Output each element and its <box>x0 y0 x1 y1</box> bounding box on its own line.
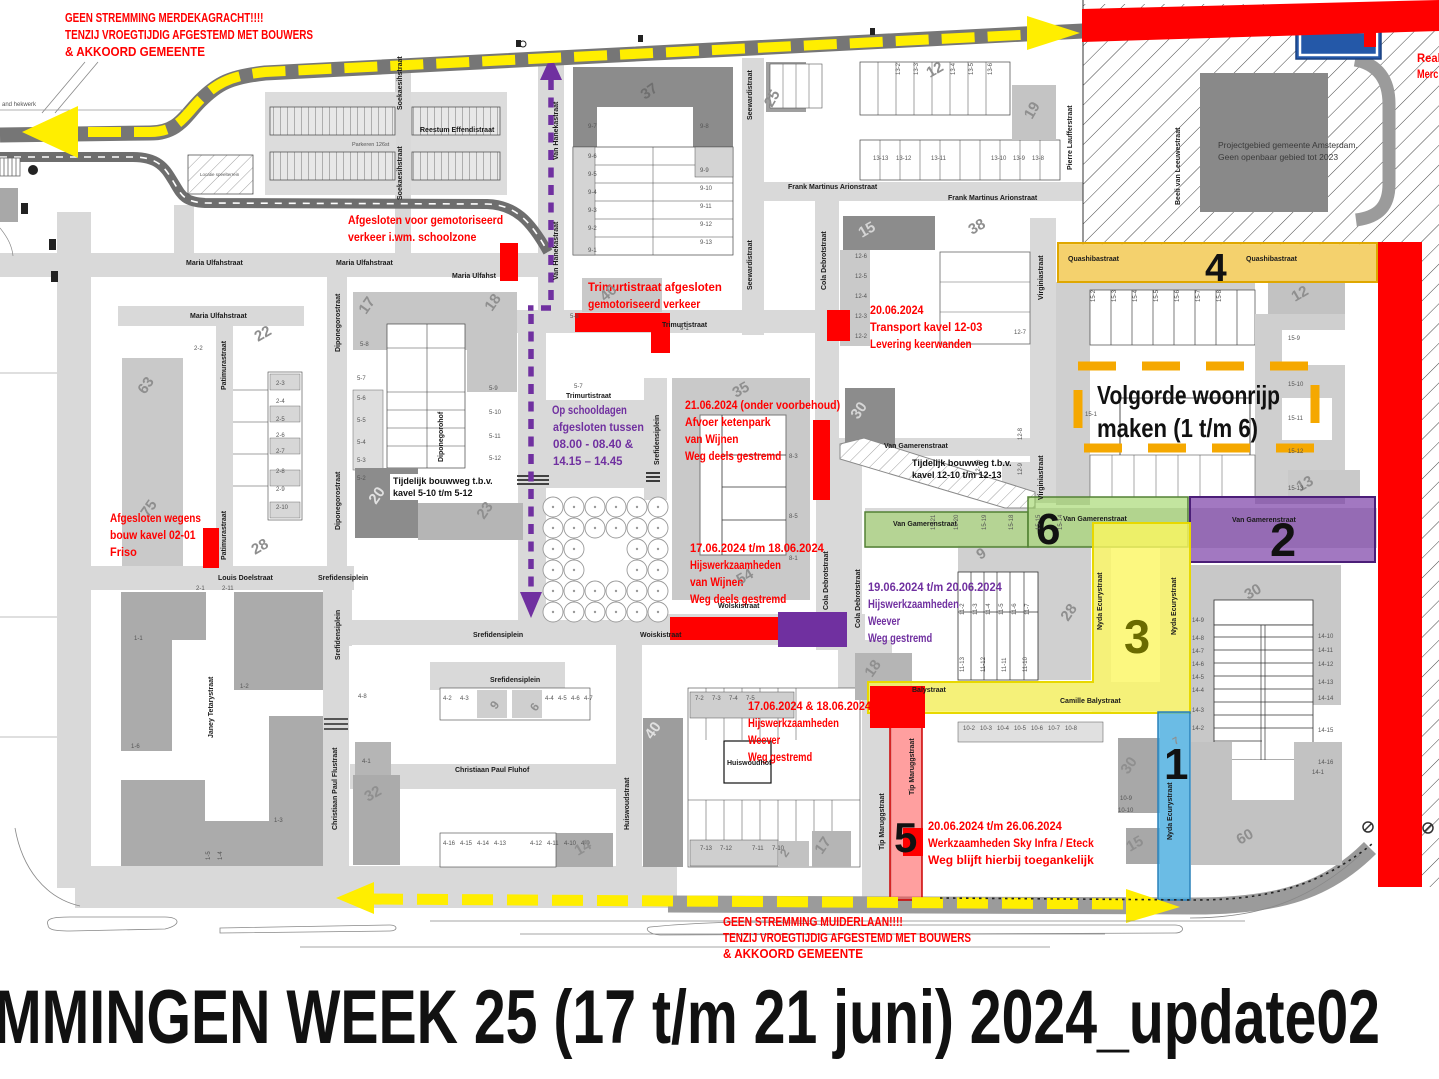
svg-text:9-1: 9-1 <box>680 326 689 332</box>
svg-text:15-14: 15-14 <box>1058 514 1064 530</box>
svg-text:Diponegorostraat: Diponegorostraat <box>335 471 342 530</box>
svg-text:Van Hanekastraat: Van Hanekastraat <box>553 101 560 160</box>
svg-text:12-8: 12-8 <box>1018 427 1024 440</box>
svg-text:11-2: 11-2 <box>960 603 966 615</box>
svg-text:15-20: 15-20 <box>954 514 960 530</box>
svg-text:7-5: 7-5 <box>746 696 755 702</box>
svg-text:Frank Martinus Arionstraat: Frank Martinus Arionstraat <box>948 195 1038 202</box>
svg-text:15-1: 15-1 <box>1085 412 1098 418</box>
svg-text:7-13: 7-13 <box>700 846 713 852</box>
svg-text:14-14: 14-14 <box>1318 696 1334 702</box>
svg-text:2-1: 2-1 <box>196 586 205 592</box>
svg-text:Afgesloten voor gemotoriseerd: Afgesloten voor gemotoriseerd <box>348 214 503 227</box>
svg-text:kavel 5-10 t/m 5-12: kavel 5-10 t/m 5-12 <box>393 488 473 498</box>
svg-text:1-3: 1-3 <box>274 818 283 824</box>
svg-text:Srefidensiplein: Srefidensiplein <box>318 575 368 582</box>
svg-text:5-8: 5-8 <box>570 314 579 320</box>
svg-text:21.06.2024 (onder voorbehoud): 21.06.2024 (onder voorbehoud) <box>685 399 840 412</box>
svg-text:15-15: 15-15 <box>1036 514 1042 530</box>
svg-text:4: 4 <box>1205 247 1227 290</box>
svg-text:10-8: 10-8 <box>1065 726 1078 732</box>
svg-text:Van Hanekastraat: Van Hanekastraat <box>553 221 560 280</box>
svg-text:2-5: 2-5 <box>276 417 285 423</box>
svg-text:Hijswerkzaamheden: Hijswerkzaamheden <box>690 559 781 572</box>
svg-text:Patimurastraat: Patimurastraat <box>221 340 228 390</box>
svg-text:Tip Maruggstraat: Tip Maruggstraat <box>909 738 916 795</box>
svg-text:2-4: 2-4 <box>276 399 285 405</box>
svg-text:10-5: 10-5 <box>1014 726 1027 732</box>
svg-text:2-6: 2-6 <box>276 433 285 439</box>
svg-text:5-7: 5-7 <box>574 384 583 390</box>
svg-text:Weg deels gestremd: Weg deels gestremd <box>685 450 781 463</box>
svg-text:Wolskistraat: Wolskistraat <box>718 603 760 610</box>
svg-text:Christiaan Paul Flustraat: Christiaan Paul Flustraat <box>332 747 339 830</box>
svg-text:15-10: 15-10 <box>1288 382 1304 388</box>
svg-text:4-16: 4-16 <box>443 841 456 847</box>
svg-text:GEEN STREMMING MUIDERLAAN!!!!: GEEN STREMMING MUIDERLAAN!!!! <box>723 914 903 929</box>
svg-text:9-5: 9-5 <box>588 172 597 178</box>
svg-text:Maria Ulfahstraat: Maria Ulfahstraat <box>336 260 393 267</box>
svg-text:Weg gestremd: Weg gestremd <box>868 632 932 645</box>
svg-text:Louis Doelstraat: Louis Doelstraat <box>218 575 274 582</box>
svg-text:4-2: 4-2 <box>443 696 452 702</box>
svg-text:7-2: 7-2 <box>695 696 704 702</box>
svg-text:15-12: 15-12 <box>1288 449 1304 455</box>
svg-text:5-12: 5-12 <box>489 456 502 462</box>
svg-text:13-13: 13-13 <box>873 156 889 162</box>
svg-text:4-14: 4-14 <box>477 841 490 847</box>
svg-text:14-5: 14-5 <box>1192 675 1205 681</box>
svg-text:5-9: 5-9 <box>489 386 498 392</box>
svg-text:Locatie speelterrein: Locatie speelterrein <box>200 172 240 177</box>
svg-text:Soekaesihstraat: Soekaesihstraat <box>397 146 404 200</box>
svg-text:15-4: 15-4 <box>1133 289 1139 302</box>
svg-text:Camille Balystraat: Camille Balystraat <box>1060 698 1121 705</box>
svg-text:1-6: 1-6 <box>131 744 140 750</box>
svg-text:4-8: 4-8 <box>358 694 367 700</box>
svg-text:10-4: 10-4 <box>997 726 1010 732</box>
svg-text:11-7: 11-7 <box>1025 603 1031 615</box>
svg-text:5: 5 <box>894 814 917 861</box>
svg-text:Srefidensiplein: Srefidensiplein <box>654 415 661 465</box>
svg-text:11-13: 11-13 <box>960 656 966 672</box>
svg-text:20.06.2024: 20.06.2024 <box>870 304 924 317</box>
svg-text:7-12: 7-12 <box>720 846 733 852</box>
svg-text:Nyda Ecurystraat: Nyda Ecurystraat <box>1167 782 1174 840</box>
svg-text:Woiskistraat: Woiskistraat <box>640 632 682 639</box>
svg-text:19.06.2024 t/m 20.06.2024: 19.06.2024 t/m 20.06.2024 <box>868 581 1002 594</box>
svg-text:13-12: 13-12 <box>896 156 912 162</box>
svg-text:Parkeren 126st: Parkeren 126st <box>352 142 390 148</box>
svg-text:Soekaesihstraat: Soekaesihstraat <box>397 56 404 110</box>
svg-text:Transport kavel 12-03: Transport kavel 12-03 <box>870 321 983 334</box>
svg-text:14-7: 14-7 <box>1192 649 1205 655</box>
svg-text:maken (1 t/m 6): maken (1 t/m 6) <box>1097 413 1258 443</box>
svg-text:9-8: 9-8 <box>700 124 709 130</box>
svg-text:4-5: 4-5 <box>558 696 567 702</box>
svg-text:9-10: 9-10 <box>700 186 713 192</box>
svg-text:15-21: 15-21 <box>931 514 937 530</box>
svg-text:Huiswoudhof: Huiswoudhof <box>727 760 772 767</box>
svg-text:van Wijnen: van Wijnen <box>685 433 739 446</box>
svg-text:10-10: 10-10 <box>1118 808 1134 814</box>
svg-text:Diponegorostraat: Diponegorostraat <box>335 293 342 352</box>
svg-text:15-6: 15-6 <box>1175 289 1181 302</box>
svg-text:12-10: 12-10 <box>976 459 982 475</box>
svg-text:14-15: 14-15 <box>1318 728 1334 734</box>
svg-text:9-11: 9-11 <box>700 204 712 210</box>
svg-text:4-12: 4-12 <box>530 841 543 847</box>
svg-text:14-12: 14-12 <box>1318 662 1334 668</box>
svg-text:2-9: 2-9 <box>276 487 285 493</box>
svg-text:5-3: 5-3 <box>357 458 366 464</box>
svg-text:Christiaan Paul Fluhof: Christiaan Paul Fluhof <box>455 767 530 774</box>
svg-text:1-5: 1-5 <box>206 851 212 860</box>
svg-text:Reestum Effendistraat: Reestum Effendistraat <box>420 127 495 134</box>
svg-text:12-3: 12-3 <box>855 314 868 320</box>
svg-text:Werkzaamheden Sky Infra / Etec: Werkzaamheden Sky Infra / Eteck <box>928 837 1094 850</box>
svg-text:15-2: 15-2 <box>1091 289 1097 302</box>
svg-text:5-7: 5-7 <box>357 376 366 382</box>
svg-text:Seewardistraat: Seewardistraat <box>747 70 754 120</box>
svg-text:14-9: 14-9 <box>1192 618 1205 624</box>
svg-text:9-9: 9-9 <box>700 168 709 174</box>
svg-text:Van Gamerenstraat: Van Gamerenstraat <box>884 443 948 450</box>
svg-text:12-6: 12-6 <box>855 254 868 260</box>
svg-text:Virginiastraat: Virginiastraat <box>1038 455 1045 500</box>
svg-text:14-10: 14-10 <box>1318 634 1334 640</box>
svg-text:11-12: 11-12 <box>981 656 987 672</box>
svg-text:8-5: 8-5 <box>789 514 798 520</box>
svg-text:4-15: 4-15 <box>460 841 473 847</box>
svg-text:10-6: 10-6 <box>1031 726 1044 732</box>
svg-text:Beeli van Leeuwestraat: Beeli van Leeuwestraat <box>1175 127 1182 205</box>
svg-text:11-6: 11-6 <box>1012 603 1018 615</box>
svg-text:Weever: Weever <box>868 615 900 628</box>
svg-text:TENZIJ VROEGTIJDIG AFGESTEMD M: TENZIJ VROEGTIJDIG AFGESTEMD MET BOUWERS <box>65 27 313 42</box>
svg-text:afgesloten tussen: afgesloten tussen <box>553 421 644 434</box>
svg-text:13-11: 13-11 <box>931 156 947 162</box>
svg-text:13-5: 13-5 <box>969 62 975 75</box>
svg-text:13-6: 13-6 <box>988 62 994 75</box>
svg-text:Virginiastraat: Virginiastraat <box>1038 255 1045 300</box>
svg-text:15-5: 15-5 <box>1154 289 1160 302</box>
svg-text:Tip Maruggstraat: Tip Maruggstraat <box>879 793 886 850</box>
svg-text:14-3: 14-3 <box>1192 708 1205 714</box>
svg-text:10-2: 10-2 <box>963 726 976 732</box>
svg-text:08.00 - 08.40 &: 08.00 - 08.40 & <box>553 438 634 451</box>
svg-text:4-4: 4-4 <box>545 696 554 702</box>
svg-text:15-8: 15-8 <box>1217 289 1223 302</box>
svg-text:13-9: 13-9 <box>1013 156 1026 162</box>
svg-text:4-11: 4-11 <box>547 841 559 847</box>
svg-text:2-10: 2-10 <box>276 505 289 511</box>
svg-text:Projectgebied gemeente Amsterd: Projectgebied gemeente Amsterdam. <box>1218 140 1358 150</box>
svg-text:bouw kavel 02-01: bouw kavel 02-01 <box>110 529 196 542</box>
svg-text:Hijswerkzaamheden: Hijswerkzaamheden <box>748 717 839 730</box>
svg-text:7-4: 7-4 <box>729 696 738 702</box>
svg-text:10-3: 10-3 <box>980 726 993 732</box>
svg-text:Quashibastraat: Quashibastraat <box>1068 256 1120 263</box>
svg-text:14-6: 14-6 <box>1192 662 1205 668</box>
svg-text:Nyda Ecurystraat: Nyda Ecurystraat <box>1171 577 1178 635</box>
svg-text:9-12: 9-12 <box>700 222 713 228</box>
svg-text:4-6: 4-6 <box>571 696 580 702</box>
svg-text:Reali: Reali <box>1417 52 1439 65</box>
svg-text:1-4: 1-4 <box>218 851 224 860</box>
svg-text:2-8: 2-8 <box>276 469 285 475</box>
svg-text:Volgorde woonrijp: Volgorde woonrijp <box>1097 380 1280 410</box>
svg-text:2-2: 2-2 <box>194 346 203 352</box>
svg-text:Seewardistraat: Seewardistraat <box>747 240 754 290</box>
svg-text:9-2: 9-2 <box>588 226 597 232</box>
svg-text:10-7: 10-7 <box>1048 726 1061 732</box>
svg-text:MMINGEN WEEK 25 (17 t/m 21 jun: MMINGEN WEEK 25 (17 t/m 21 juni) 2024_up… <box>0 975 1380 1060</box>
svg-text:14-11: 14-11 <box>1318 648 1334 654</box>
svg-text:9-13: 9-13 <box>700 240 713 246</box>
svg-text:4-1: 4-1 <box>362 759 371 765</box>
svg-text:5-8: 5-8 <box>360 342 369 348</box>
svg-text:Van Gamerenstraat: Van Gamerenstraat <box>893 521 957 528</box>
svg-text:13-4: 13-4 <box>951 62 957 75</box>
svg-text:14-16: 14-16 <box>1318 760 1334 766</box>
svg-text:verkeer i.wm. schoolzone: verkeer i.wm. schoolzone <box>348 231 477 244</box>
svg-text:GEEN STREMMING MERDEKAGRACHT!!: GEEN STREMMING MERDEKAGRACHT!!!! <box>65 10 263 25</box>
svg-text:Srefidensiplein: Srefidensiplein <box>490 677 540 684</box>
svg-text:Merc: Merc <box>1417 68 1439 81</box>
svg-text:15-13: 15-13 <box>1288 486 1304 492</box>
svg-text:Nyda Ecurystraat: Nyda Ecurystraat <box>1097 572 1104 630</box>
svg-text:11-4: 11-4 <box>986 603 992 615</box>
svg-text:5-4: 5-4 <box>357 440 366 446</box>
svg-text:Tijdelijk bouwweg t.b.v.: Tijdelijk bouwweg t.b.v. <box>912 458 1012 468</box>
svg-text:Op schooldagen: Op schooldagen <box>552 404 627 417</box>
svg-text:14-2: 14-2 <box>1192 726 1205 732</box>
svg-text:1-1: 1-1 <box>134 636 143 642</box>
svg-text:12-5: 12-5 <box>855 274 868 280</box>
svg-text:12-4: 12-4 <box>855 294 868 300</box>
svg-text:15-11: 15-11 <box>1288 416 1304 422</box>
svg-text:9-4: 9-4 <box>588 190 597 196</box>
svg-text:14-1: 14-1 <box>1312 770 1325 776</box>
svg-text:Hijswerkzaamheden: Hijswerkzaamheden <box>868 598 959 611</box>
svg-text:8-3: 8-3 <box>789 454 798 460</box>
svg-text:Frank Martinus Arionstraat: Frank Martinus Arionstraat <box>788 184 878 191</box>
svg-text:2-7: 2-7 <box>276 449 285 455</box>
svg-text:Afvoer ketenpark: Afvoer ketenpark <box>685 416 771 429</box>
svg-text:7-11: 7-11 <box>752 846 764 852</box>
svg-text:Geen openbaar gebied tot 2023: Geen openbaar gebied tot 2023 <box>1218 152 1338 162</box>
svg-text:13-2: 13-2 <box>896 62 902 75</box>
svg-text:5-2: 5-2 <box>357 476 366 482</box>
svg-text:4-7: 4-7 <box>584 696 593 702</box>
svg-text:8-1: 8-1 <box>789 556 798 562</box>
svg-text:5-11: 5-11 <box>489 434 501 440</box>
svg-text:3: 3 <box>1124 610 1150 663</box>
svg-text:1-2: 1-2 <box>240 684 249 690</box>
svg-text:Balystraat: Balystraat <box>912 687 947 694</box>
svg-text:7-3: 7-3 <box>712 696 721 702</box>
svg-text:20.06.2024 t/m 26.06.2024: 20.06.2024 t/m 26.06.2024 <box>928 820 1062 833</box>
svg-text:Maria Ulfahstraat: Maria Ulfahstraat <box>186 260 243 267</box>
svg-text:kavel 12-10 t/m 12-13: kavel 12-10 t/m 12-13 <box>912 470 1002 480</box>
svg-text:Van Gamerenstraat: Van Gamerenstraat <box>1232 517 1296 524</box>
svg-text:11-3: 11-3 <box>973 603 979 615</box>
svg-text:9-6: 9-6 <box>588 154 597 160</box>
svg-text:Patimurastraat: Patimurastraat <box>221 510 228 560</box>
svg-text:& AKKOORD GEMEENTE: & AKKOORD GEMEENTE <box>65 44 205 59</box>
svg-text:Janey Tetarystraat: Janey Tetarystraat <box>208 676 215 738</box>
svg-text:15-18: 15-18 <box>1009 514 1015 530</box>
svg-text:14-13: 14-13 <box>1318 680 1334 686</box>
svg-text:2-3: 2-3 <box>276 381 285 387</box>
svg-text:14-4: 14-4 <box>1192 688 1205 694</box>
svg-text:12-2: 12-2 <box>855 334 868 340</box>
svg-text:9-3: 9-3 <box>588 208 597 214</box>
svg-text:Srefidensiplein: Srefidensiplein <box>473 632 523 639</box>
svg-text:5-10: 5-10 <box>489 410 502 416</box>
svg-text:13-10: 13-10 <box>991 156 1007 162</box>
svg-text:9-1: 9-1 <box>588 248 597 254</box>
svg-text:and hekwerk: and hekwerk <box>2 102 37 108</box>
svg-text:Cola Debrotstraat: Cola Debrotstraat <box>821 231 828 290</box>
svg-text:Van Gamerenstraat: Van Gamerenstraat <box>1063 516 1127 523</box>
svg-text:15-9: 15-9 <box>1288 336 1301 342</box>
svg-text:12-7: 12-7 <box>1014 330 1027 336</box>
svg-text:Huiswoudstraat: Huiswoudstraat <box>624 777 631 830</box>
svg-text:TENZIJ VROEGTIJDIG AFGESTEMD M: TENZIJ VROEGTIJDIG AFGESTEMD MET BOUWERS <box>723 930 971 945</box>
svg-text:15-7: 15-7 <box>1196 289 1202 302</box>
svg-text:12-9: 12-9 <box>1018 462 1024 475</box>
svg-text:Tijdelijk bouwweg t.b.v.: Tijdelijk bouwweg t.b.v. <box>393 476 493 486</box>
svg-text:Diponegorohof: Diponegorohof <box>438 411 445 462</box>
svg-text:13-8: 13-8 <box>1032 156 1045 162</box>
svg-text:4-3: 4-3 <box>460 696 469 702</box>
svg-text:Pierre Laufferstraat: Pierre Laufferstraat <box>1067 105 1074 170</box>
svg-text:17.06.2024 & 18.06.2024: 17.06.2024 & 18.06.2024 <box>748 700 872 713</box>
svg-text:9-7: 9-7 <box>588 124 597 130</box>
svg-text:Maria Ulfahst: Maria Ulfahst <box>452 273 497 280</box>
svg-text:11-11: 11-11 <box>1002 657 1008 672</box>
svg-text:Cola Debrotstraat: Cola Debrotstraat <box>823 551 830 610</box>
svg-text:Quashibastraat: Quashibastraat <box>1246 256 1298 263</box>
svg-text:4-13: 4-13 <box>494 841 507 847</box>
svg-text:Weever: Weever <box>748 734 780 747</box>
svg-text:15-3: 15-3 <box>1112 289 1118 302</box>
svg-text:13-3: 13-3 <box>914 62 920 75</box>
svg-text:Maria Ulfahstraat: Maria Ulfahstraat <box>190 313 247 320</box>
svg-text:5-6: 5-6 <box>357 396 366 402</box>
svg-text:Weg blijft hierbij toegankelij: Weg blijft hierbij toegankelijk <box>928 854 1094 867</box>
svg-text:17.06.2024 t/m 18.06.2024: 17.06.2024 t/m 18.06.2024 <box>690 542 824 555</box>
svg-text:Srefidensiplein: Srefidensiplein <box>335 610 342 660</box>
svg-text:& AKKOORD GEMEENTE: & AKKOORD GEMEENTE <box>723 946 863 961</box>
svg-text:Cola Debrotstraat: Cola Debrotstraat <box>855 569 862 628</box>
svg-text:Levering keerwanden: Levering keerwanden <box>870 338 972 351</box>
svg-text:Friso: Friso <box>110 546 137 559</box>
svg-text:14.15 – 14.45: 14.15 – 14.45 <box>553 455 623 468</box>
svg-text:15-19: 15-19 <box>982 514 988 530</box>
svg-text:Trimurtistraat: Trimurtistraat <box>566 393 612 400</box>
svg-text:5-5: 5-5 <box>357 418 366 424</box>
svg-text:10-9: 10-9 <box>1120 796 1133 802</box>
svg-text:11-10: 11-10 <box>1023 656 1029 672</box>
svg-text:2-11: 2-11 <box>222 586 234 592</box>
svg-text:11-5: 11-5 <box>999 603 1005 615</box>
svg-text:14-8: 14-8 <box>1192 636 1205 642</box>
